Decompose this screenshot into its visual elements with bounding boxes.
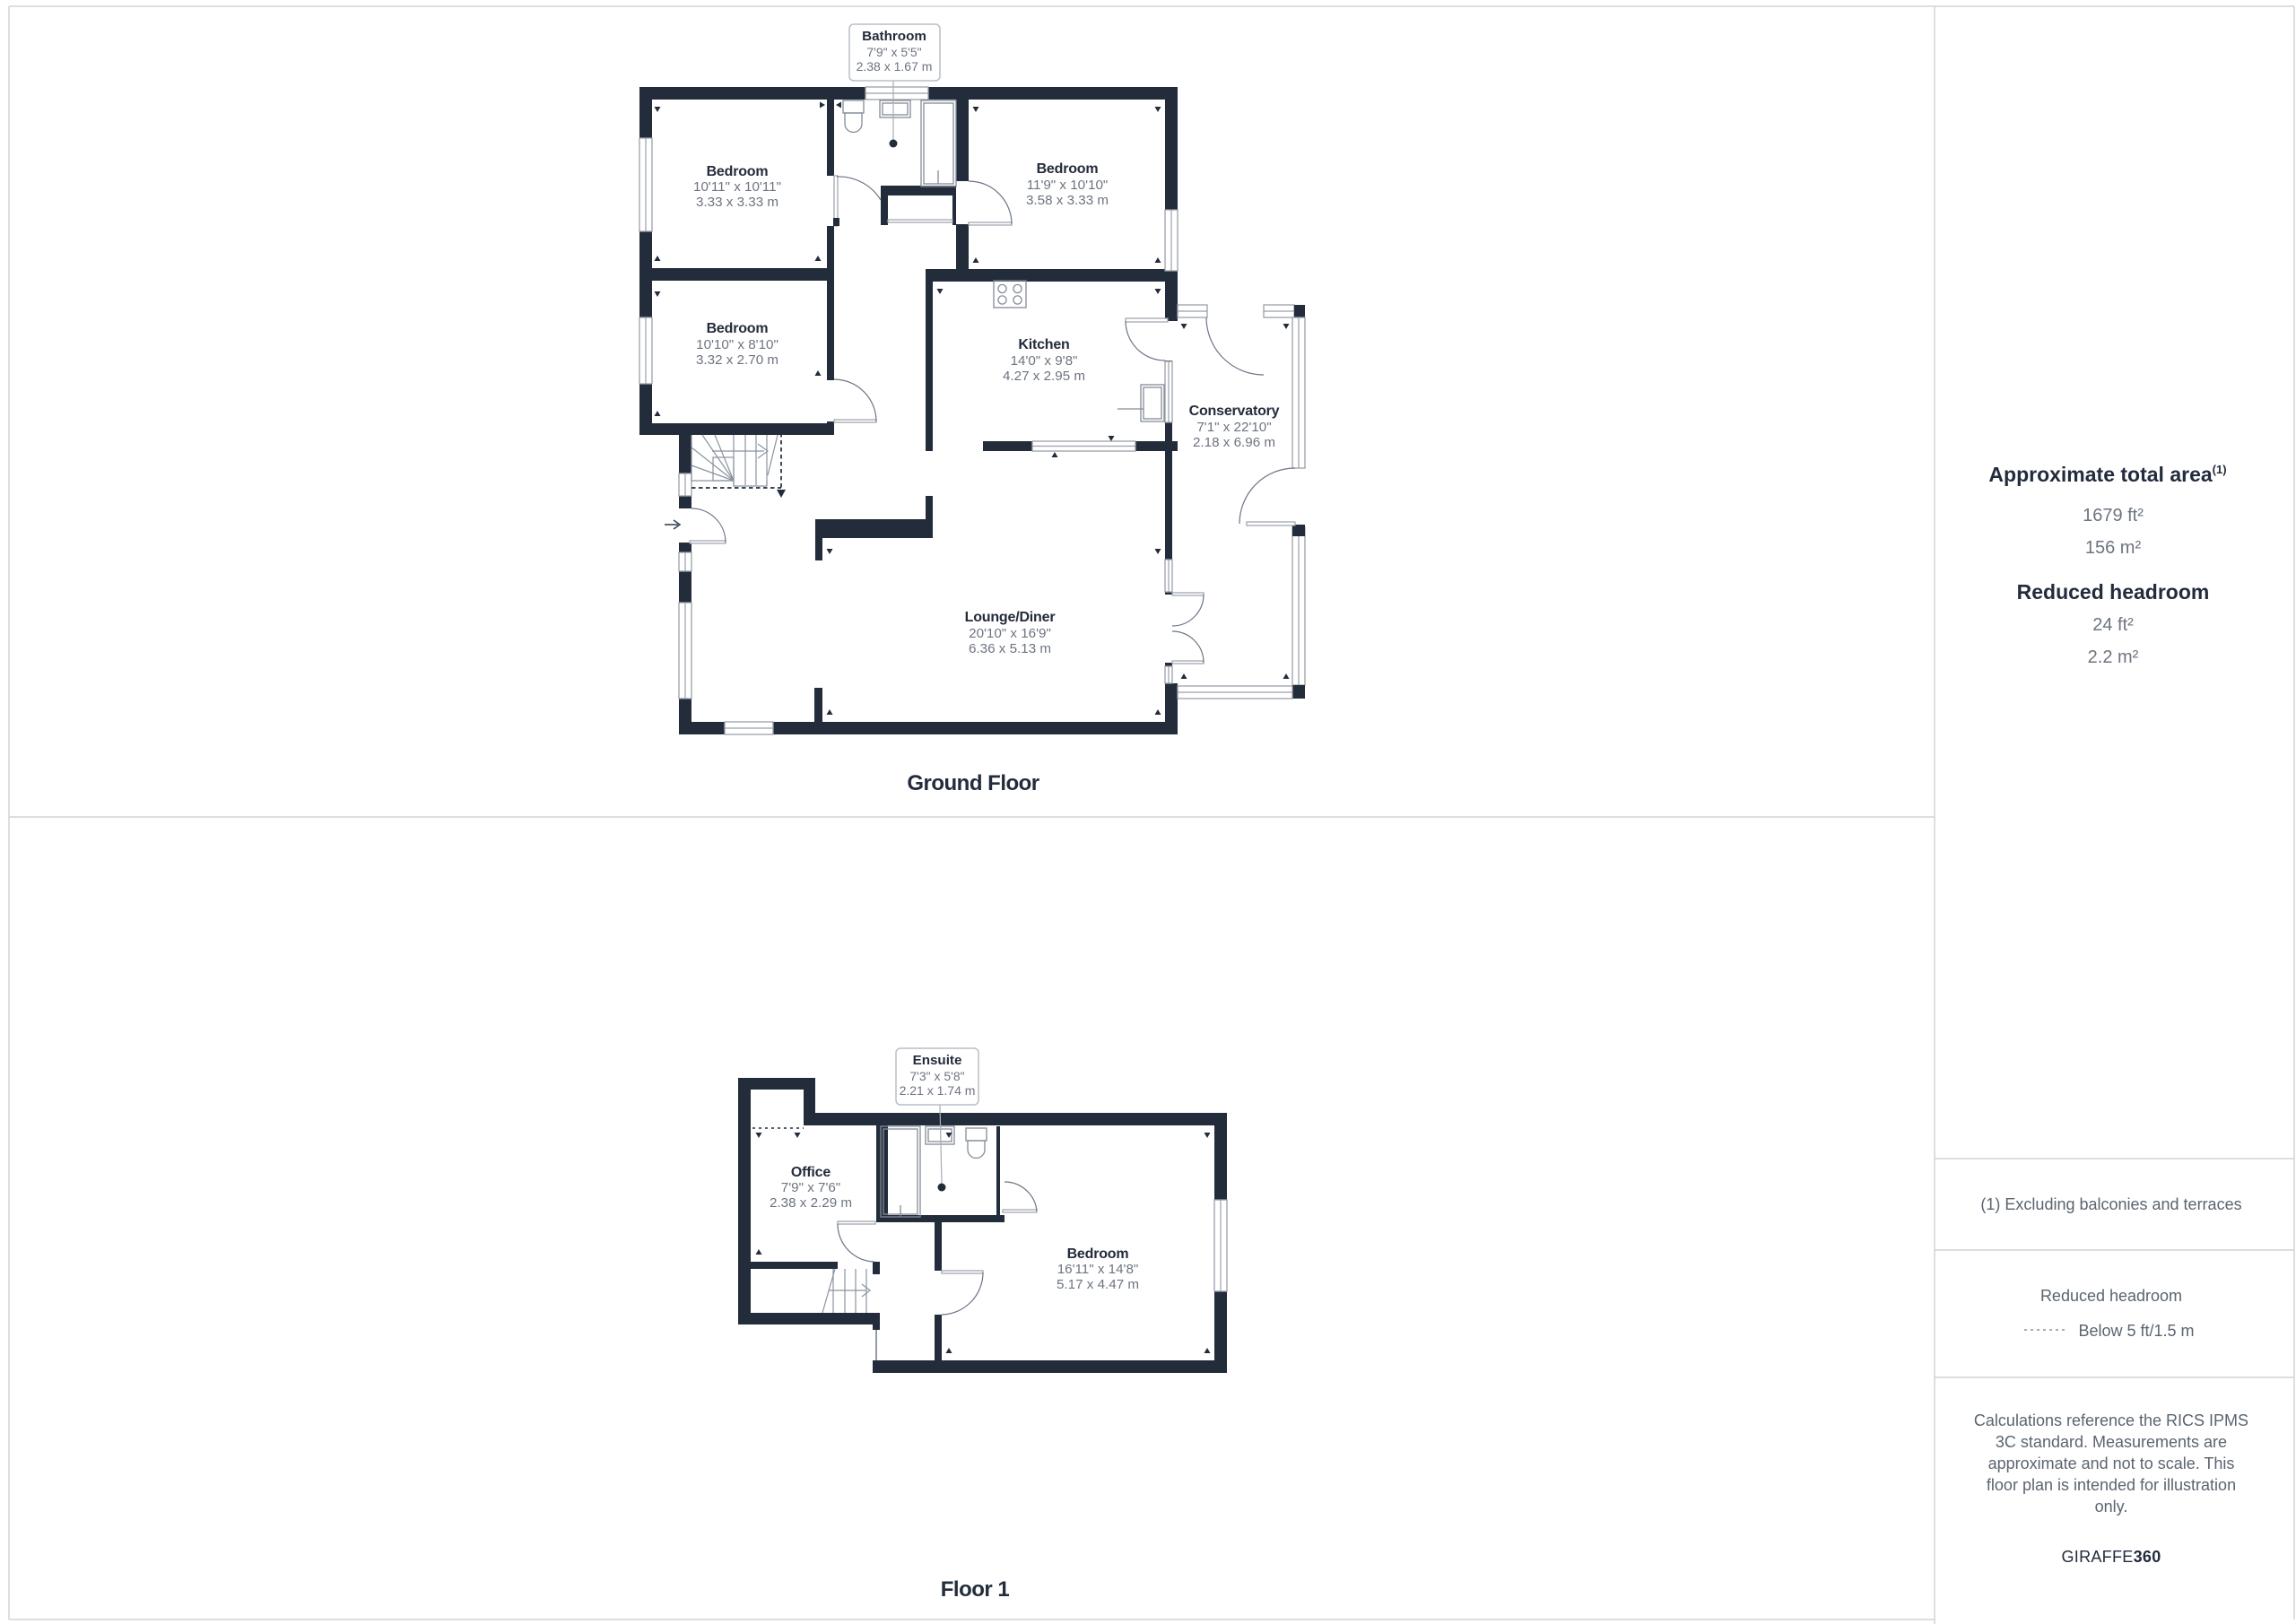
svg-text:Office: Office: [791, 1165, 831, 1180]
svg-text:Below 5 ft/1.5 m: Below 5 ft/1.5 m: [2078, 1322, 2194, 1340]
svg-text:approximate and not to scale.: approximate and not to scale. This: [1988, 1455, 2235, 1472]
svg-text:20'10" x 16'9": 20'10" x 16'9": [969, 626, 1051, 641]
svg-text:(1) Excluding balconies and te: (1) Excluding balconies and terraces: [1980, 1195, 2241, 1213]
svg-text:Floor 1: Floor 1: [941, 1577, 1010, 1602]
svg-text:Approximate total area(1): Approximate total area(1): [1988, 463, 2226, 486]
svg-text:10'10" x 8'10": 10'10" x 8'10": [696, 337, 778, 352]
svg-text:Bedroom: Bedroom: [1037, 161, 1099, 177]
svg-text:only.: only.: [2095, 1498, 2128, 1515]
svg-text:2.2 m²: 2.2 m²: [2088, 647, 2139, 667]
svg-text:3.32 x 2.70 m: 3.32 x 2.70 m: [696, 352, 778, 368]
svg-text:floor plan is intended for ill: floor plan is intended for illustration: [1987, 1476, 2236, 1494]
svg-text:11'9" x 10'10": 11'9" x 10'10": [1027, 178, 1109, 193]
svg-text:2.38 x 1.67 m: 2.38 x 1.67 m: [857, 59, 933, 74]
svg-text:4.27 x 2.95 m: 4.27 x 2.95 m: [1003, 369, 1085, 384]
svg-text:24 ft²: 24 ft²: [2092, 615, 2134, 635]
svg-text:3.58 x 3.33 m: 3.58 x 3.33 m: [1026, 193, 1109, 208]
svg-text:7'1" x 22'10": 7'1" x 22'10": [1196, 420, 1271, 435]
svg-text:10'11" x 10'11": 10'11" x 10'11": [693, 179, 781, 195]
svg-text:7'9" x 5'5": 7'9" x 5'5": [866, 45, 921, 59]
svg-text:Bedroom: Bedroom: [707, 164, 769, 179]
svg-text:Kitchen: Kitchen: [1018, 337, 1069, 352]
svg-text:7'9" x 7'6": 7'9" x 7'6": [781, 1180, 840, 1195]
svg-text:Reduced headroom: Reduced headroom: [2017, 580, 2210, 604]
svg-text:2.38 x 2.29 m: 2.38 x 2.29 m: [770, 1195, 852, 1211]
svg-text:6.36 x 5.13 m: 6.36 x 5.13 m: [969, 641, 1051, 656]
svg-text:Calculations reference the RIC: Calculations reference the RICS IPMS: [1974, 1411, 2248, 1429]
svg-text:GIRAFFE360: GIRAFFE360: [2061, 1548, 2161, 1566]
svg-text:3.33 x 3.33 m: 3.33 x 3.33 m: [696, 195, 778, 210]
svg-text:Bedroom: Bedroom: [707, 321, 769, 336]
svg-text:Reduced headroom: Reduced headroom: [2040, 1287, 2182, 1305]
svg-text:Bathroom: Bathroom: [862, 29, 926, 44]
svg-text:Ensuite: Ensuite: [913, 1053, 962, 1068]
svg-text:156 m²: 156 m²: [2085, 538, 2142, 558]
svg-text:2.21 x 1.74 m: 2.21 x 1.74 m: [900, 1083, 976, 1098]
svg-text:2.18 x 6.96 m: 2.18 x 6.96 m: [1193, 435, 1275, 450]
svg-text:3C standard. Measurements are: 3C standard. Measurements are: [1996, 1433, 2227, 1451]
svg-text:Ground Floor: Ground Floor: [907, 771, 1039, 795]
svg-text:Bedroom: Bedroom: [1067, 1246, 1129, 1262]
svg-text:7'3" x 5'8": 7'3" x 5'8": [909, 1069, 964, 1083]
svg-text:14'0" x 9'8": 14'0" x 9'8": [1011, 353, 1078, 369]
svg-text:1679 ft²: 1679 ft²: [2083, 506, 2144, 525]
svg-text:16'11" x 14'8": 16'11" x 14'8": [1057, 1262, 1139, 1277]
svg-text:Conservatory: Conservatory: [1189, 404, 1280, 419]
svg-text:Lounge/Diner: Lounge/Diner: [965, 610, 1056, 625]
svg-text:5.17 x 4.47 m: 5.17 x 4.47 m: [1057, 1277, 1139, 1292]
